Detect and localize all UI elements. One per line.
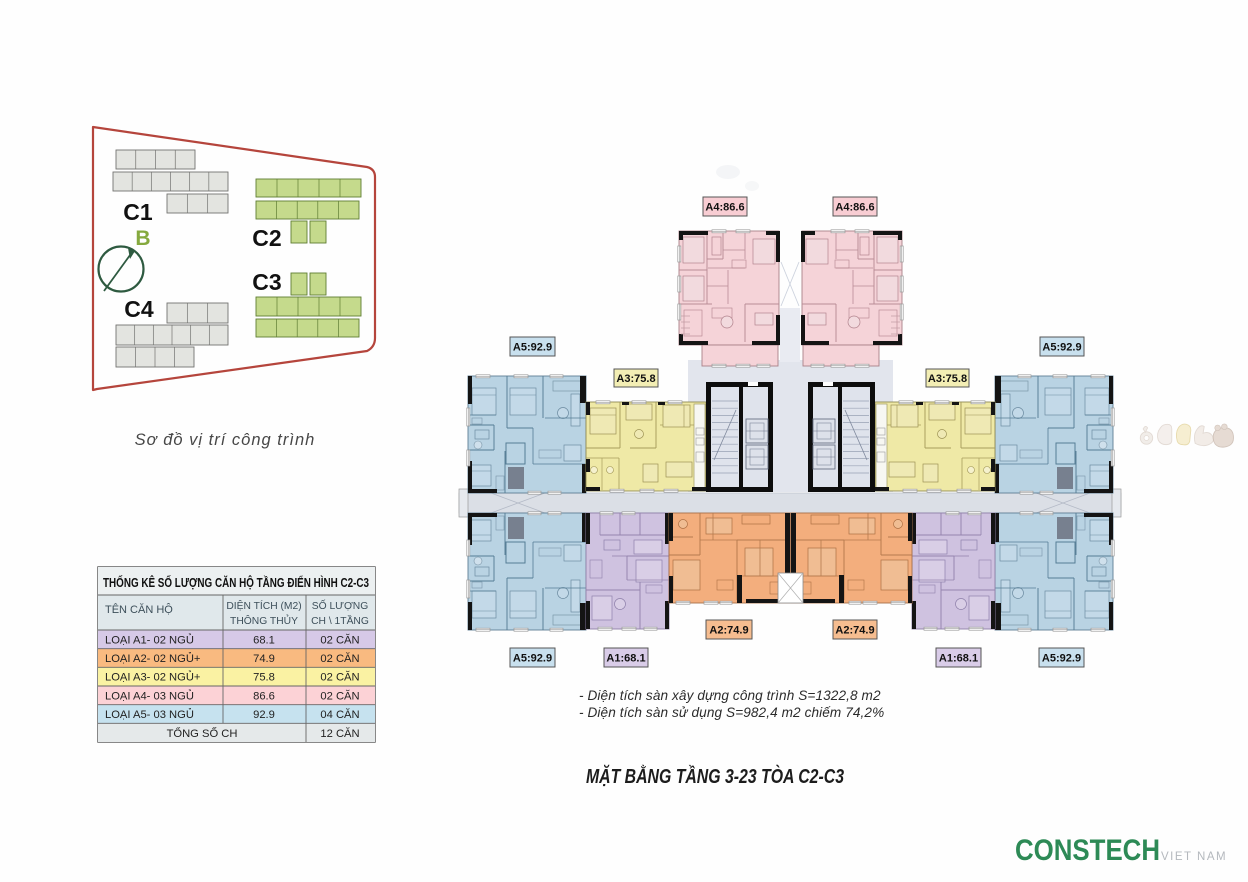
- svg-text:A3:75.8: A3:75.8: [616, 373, 655, 385]
- svg-text:74.9: 74.9: [253, 653, 275, 665]
- svg-text:02 CĂN: 02 CĂN: [320, 689, 359, 702]
- svg-text:92.9: 92.9: [253, 709, 275, 721]
- svg-text:LOẠI A1- 02 NGỦ: LOẠI A1- 02 NGỦ: [105, 633, 194, 646]
- svg-text:68.1: 68.1: [253, 634, 275, 646]
- svg-text:- Diện tích sàn sử dụng S=982,: - Diện tích sàn sử dụng S=982,4 m2 chiếm…: [579, 705, 884, 720]
- svg-text:A4:86.6: A4:86.6: [705, 202, 744, 214]
- svg-text:A5:92.9: A5:92.9: [513, 342, 552, 354]
- svg-text:C3: C3: [252, 269, 281, 295]
- svg-text:02 CĂN: 02 CĂN: [320, 652, 359, 665]
- svg-text:- Diện tích sàn xây dựng công: - Diện tích sàn xây dựng công trình S=13…: [579, 688, 881, 703]
- svg-text:A1:68.1: A1:68.1: [939, 653, 978, 665]
- svg-text:04 CĂN: 04 CĂN: [320, 708, 359, 721]
- svg-text:02 CĂN: 02 CĂN: [320, 633, 359, 646]
- svg-text:CH \ 1TẦNG: CH \ 1TẦNG: [311, 614, 369, 627]
- svg-text:A2:74.9: A2:74.9: [709, 625, 748, 637]
- svg-text:LOẠI A3- 02 NGỦ+: LOẠI A3- 02 NGỦ+: [105, 671, 200, 684]
- svg-text:CONSTECH: CONSTECH: [1015, 834, 1160, 867]
- svg-text:B: B: [135, 227, 150, 250]
- svg-text:DIỆN TÍCH (M2): DIỆN TÍCH (M2): [226, 599, 301, 612]
- svg-text:02 CĂN: 02 CĂN: [320, 671, 359, 684]
- svg-text:A5:92.9: A5:92.9: [1042, 653, 1081, 665]
- svg-text:THỐNG KÊ SỐ LƯỢNG CĂN HỘ TẦNG: THỐNG KÊ SỐ LƯỢNG CĂN HỘ TẦNG ĐIỂN HÌNH …: [103, 575, 369, 590]
- svg-text:86.6: 86.6: [253, 690, 275, 702]
- svg-text:A1:68.1: A1:68.1: [606, 653, 645, 665]
- svg-text:A2:74.9: A2:74.9: [835, 625, 874, 637]
- svg-text:Sơ đồ vị trí công trình: Sơ đồ vị trí công trình: [135, 431, 316, 449]
- svg-text:LOẠI A5- 03 NGỦ: LOẠI A5- 03 NGỦ: [105, 708, 194, 721]
- svg-text:C4: C4: [124, 296, 154, 322]
- svg-text:LOẠI A4- 03 NGỦ: LOẠI A4- 03 NGỦ: [105, 689, 194, 702]
- svg-text:LOẠI A2- 02 NGỦ+: LOẠI A2- 02 NGỦ+: [105, 652, 200, 665]
- svg-text:MẶT BẰNG TẦNG 3-23 TÒA C2-C3: MẶT BẰNG TẦNG 3-23 TÒA C2-C3: [586, 764, 844, 788]
- svg-text:A3:75.8: A3:75.8: [928, 373, 967, 385]
- svg-text:A4:86.6: A4:86.6: [835, 202, 874, 214]
- svg-text:A5:92.9: A5:92.9: [1042, 342, 1081, 354]
- svg-text:THÔNG THỦY: THÔNG THỦY: [230, 614, 298, 627]
- svg-text:C1: C1: [123, 199, 153, 225]
- svg-text:C2: C2: [252, 225, 281, 251]
- svg-text:12 CĂN: 12 CĂN: [320, 727, 359, 740]
- svg-text:TỔNG SỐ CH: TỔNG SỐ CH: [167, 726, 238, 740]
- svg-text:VIET NAM: VIET NAM: [1161, 851, 1227, 863]
- svg-text:SỐ LƯỢNG: SỐ LƯỢNG: [312, 598, 369, 612]
- svg-text:TÊN CĂN HỘ: TÊN CĂN HỘ: [105, 603, 173, 616]
- svg-text:75.8: 75.8: [253, 672, 275, 684]
- svg-text:A5:92.9: A5:92.9: [513, 653, 552, 665]
